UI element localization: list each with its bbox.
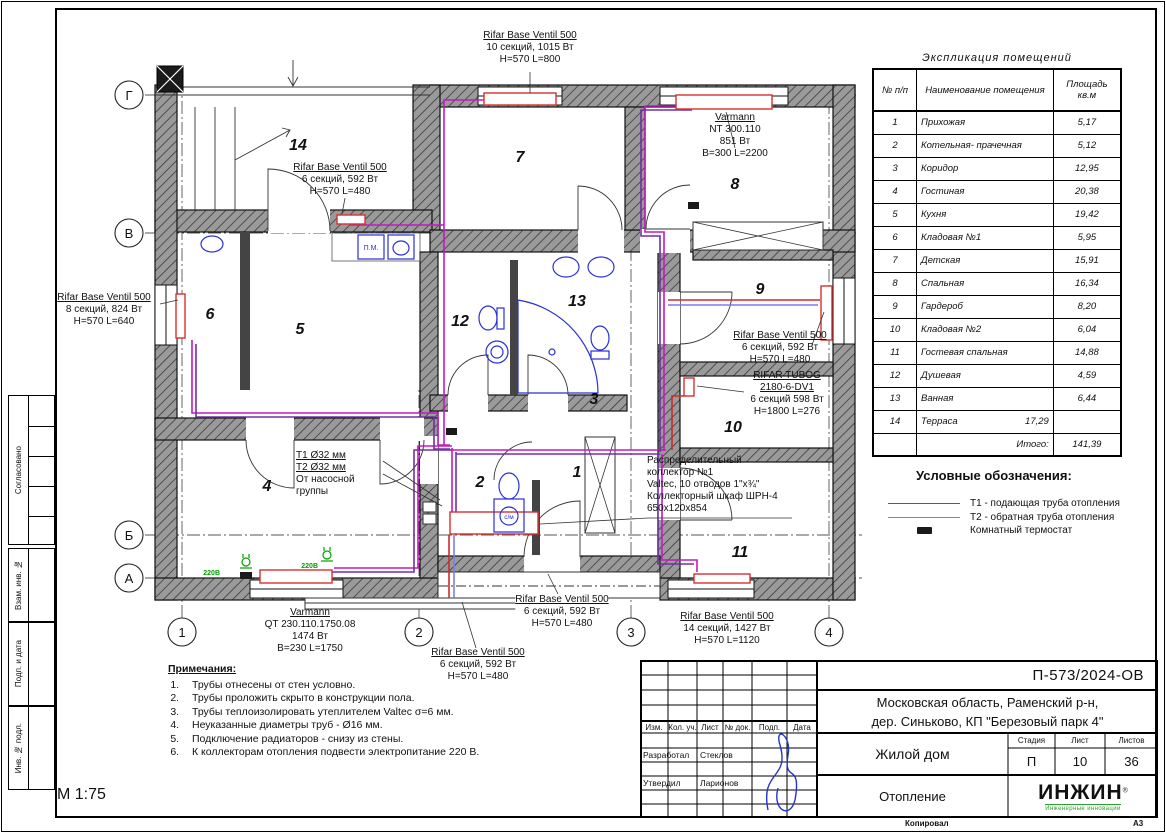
cell-num: 13 <box>873 387 917 410</box>
room-number-6: 6 <box>206 306 215 324</box>
legend-label: Комнатный термостат <box>970 525 1072 536</box>
axis-row-b: Б <box>125 528 134 543</box>
table-total-row: Итого: 141,39 <box>873 433 1121 456</box>
outlet-symbols <box>240 547 333 568</box>
strip-vzam: Взам. инв. № <box>8 548 55 622</box>
note-item: Трубы теплоизолировать утеплителем Valte… <box>182 706 536 720</box>
col-kol: Кол. уч. <box>668 721 697 733</box>
label-radiator-room8: VarmannNT 300.110 851 Вт В=300 L=2200 <box>702 112 768 160</box>
cell-name: Кладовая №1 <box>917 226 1054 249</box>
col-data: Дата <box>787 721 817 733</box>
room-number-4: 4 <box>263 478 272 496</box>
label-radiator-hall: Rifar Base Ventil 5006 секций, 592 Вт Н=… <box>515 594 608 630</box>
room-number-9: 9 <box>756 281 765 299</box>
axis-col-3: 3 <box>627 625 634 640</box>
table-header-row: № п/п Наименование помещения Площадь кв.… <box>873 69 1121 111</box>
table-row: 1Прихожая5,17 <box>873 111 1121 134</box>
sheet-number: 10 <box>1055 748 1105 775</box>
cell-area: 20,38 <box>1053 180 1121 203</box>
partitions <box>240 232 540 556</box>
legend-item-t1: Т1 - подающая труба отопления <box>888 498 1120 509</box>
room-number-10: 10 <box>724 419 742 437</box>
room-number-3: 3 <box>590 391 599 409</box>
cell-area: 14,88 <box>1053 341 1121 364</box>
cell-num: 1 <box>873 111 917 134</box>
stage-label: Стадия <box>1008 733 1055 748</box>
cell-num: 7 <box>873 249 917 272</box>
table-row: 4Гостиная20,38 <box>873 180 1121 203</box>
strip-podp: Подп. и дата <box>8 622 55 706</box>
note-item: Подключение радиаторов - снизу из стены. <box>182 733 536 747</box>
table-row: 5Кухня19,42 <box>873 203 1121 226</box>
cell-name: Ванная <box>917 387 1054 410</box>
label-collector: Распределительный коллектор №1 Valtec, 1… <box>647 455 778 515</box>
col-ndok: № док. <box>723 721 752 733</box>
drawing-sheet: 220В 220В П.М. с/м <box>0 0 1166 833</box>
note-item: Трубы отнесены от стен условно. <box>182 679 536 693</box>
table-row: 9Гардероб8,20 <box>873 295 1121 318</box>
table-row: 3Коридор12,95 <box>873 157 1121 180</box>
strip-label-soglasovano: Согласовано <box>14 446 23 494</box>
cell-name: Кладовая №2 <box>917 318 1054 341</box>
label-radiator-room6: Rifar Base Ventil 5008 секций, 824 Вт Н=… <box>57 292 150 328</box>
room-number-1: 1 <box>573 464 582 482</box>
cell-area: 4,59 <box>1053 364 1121 387</box>
table-row: 7Детская15,91 <box>873 249 1121 272</box>
logo-subtitle: Инженерные инновации <box>1045 804 1121 812</box>
room-number-2: 2 <box>476 474 485 492</box>
legend-item-t2: Т2 - обратная труба отопления <box>888 512 1114 523</box>
sheet-title: Отопление <box>817 775 1008 818</box>
cell-num <box>873 433 917 456</box>
format-label: А3 <box>1133 819 1143 828</box>
logo-text: ИНЖИН <box>1038 781 1123 804</box>
cell-area: 5,17 <box>1053 111 1121 134</box>
label-radiator-tubog: RIFAR TUBOG 2180-6-DV16 секций 598 Вт Н=… <box>750 370 823 418</box>
cell-num: 6 <box>873 226 917 249</box>
label-radiator-room4: VarmannQT 230.110.1750.08 1474 Вт В=230 … <box>265 607 356 655</box>
cell-area: 5,95 <box>1053 226 1121 249</box>
table-row: 11Гостевая спальная14,88 <box>873 341 1121 364</box>
cell-name: Гостевая спальная <box>917 341 1054 364</box>
table-row: 10Кладовая №26,04 <box>873 318 1121 341</box>
room-schedule: Экспликация помещений № п/п Наименование… <box>872 52 1122 457</box>
room-number-8: 8 <box>731 176 740 194</box>
cell-name: Гостиная <box>917 180 1054 203</box>
note-item: К коллекторам отопления подвести электро… <box>182 746 536 760</box>
cell-num: 5 <box>873 203 917 226</box>
col-izm: Изм. <box>640 721 668 733</box>
label-radiator-room7: Rifar Base Ventil 50010 секций, 1015 Вт … <box>483 30 576 66</box>
cell-name: Кухня <box>917 203 1054 226</box>
cell-num: 14 <box>873 410 917 433</box>
drawing-scale: М 1:75 <box>57 786 106 804</box>
axis-col-1: 1 <box>178 625 185 640</box>
cell-area: 16,34 <box>1053 272 1121 295</box>
cell-num: 11 <box>873 341 917 364</box>
cell-num: 12 <box>873 364 917 387</box>
axis-row-a: А <box>125 571 134 586</box>
total-value: 141,39 <box>1053 433 1121 456</box>
room-number-5: 5 <box>296 321 305 339</box>
cell-area: 6,04 <box>1053 318 1121 341</box>
legend-item-thermostat: Комнатный термостат <box>888 525 1072 536</box>
copied-label: Копировал <box>905 819 949 828</box>
object-name: Жилой дом <box>817 733 1008 775</box>
project-address: Московская область, Раменский р-н, дер. … <box>817 690 1158 733</box>
outlet-label-2: 220В <box>301 563 318 570</box>
strip-label-vzam: Взам. инв. № <box>14 560 23 610</box>
room-number-13: 13 <box>568 293 586 311</box>
room-name: Терраса <box>921 416 958 427</box>
sheets-label: Листов <box>1105 733 1158 748</box>
room-number-14: 14 <box>289 137 307 155</box>
cell-num: 3 <box>873 157 917 180</box>
room-area-inline: 17,29 <box>1025 416 1049 427</box>
notes-title: Примечания: <box>168 663 536 677</box>
cell-area <box>1053 410 1121 433</box>
outlet-label-1: 220В <box>203 570 220 577</box>
room-schedule-title: Экспликация помещений <box>872 52 1122 64</box>
table-row: 12Душевая4,59 <box>873 364 1121 387</box>
cell-name: Прихожая <box>917 111 1054 134</box>
logo-registered-mark: ® <box>1123 787 1128 794</box>
strip-approved: Согласовано <box>8 395 55 545</box>
cell-area: 12,95 <box>1053 157 1121 180</box>
axis-row-g: Г <box>125 88 132 103</box>
label-radiator-room9: Rifar Base Ventil 5006 секций, 592 Вт Н=… <box>733 330 826 366</box>
approved-role: Утвердил <box>640 776 697 790</box>
cell-num: 4 <box>873 180 917 203</box>
cell-area: 8,20 <box>1053 295 1121 318</box>
col-podp: Подп. <box>752 721 787 733</box>
table-row: 2Котельная- прачечная5,12 <box>873 134 1121 157</box>
title-block: П-573/2024-ОВ Московская область, Раменс… <box>640 660 1158 818</box>
table-row: 8Спальная16,34 <box>873 272 1121 295</box>
col-header-name: Наименование помещения <box>917 69 1054 111</box>
cell-area: 19,42 <box>1053 203 1121 226</box>
strip-label-podp: Подп. и дата <box>14 640 23 687</box>
axis-col-4: 4 <box>825 625 832 640</box>
col-header-num: № п/п <box>873 69 917 111</box>
total-label: Итого: <box>917 433 1054 456</box>
cell-name: Коридор <box>917 157 1054 180</box>
chimney <box>157 66 183 92</box>
cell-area: 15,91 <box>1053 249 1121 272</box>
cell-name: Терраса17,29 <box>917 410 1054 433</box>
signature-scribble <box>767 734 797 811</box>
company-logo: ИНЖИН® Инженерные инновации <box>1008 775 1158 818</box>
developed-name: Стеклов <box>697 748 752 762</box>
axis-row-v: В <box>125 226 134 241</box>
cell-name: Детская <box>917 249 1054 272</box>
document-code: П-573/2024-ОВ <box>817 660 1158 690</box>
cell-name: Котельная- прачечная <box>917 134 1054 157</box>
label-supply-pipes: Т1 Ø32 мм Т2 Ø32 мм От насосной группы <box>296 450 355 498</box>
cell-area: 5,12 <box>1053 134 1121 157</box>
t2-line-sample <box>888 517 960 518</box>
stage-value: П <box>1008 748 1055 775</box>
approved-name: Ларионов <box>697 776 752 790</box>
washer-label: с/м <box>504 514 514 521</box>
strip-inv: Инв. № подл. <box>8 706 55 790</box>
room-number-7: 7 <box>516 149 525 167</box>
axis-col-2: 2 <box>415 625 422 640</box>
legend-label: Т2 - обратная труба отопления <box>970 512 1114 523</box>
cell-name: Спальная <box>917 272 1054 295</box>
cell-area: 6,44 <box>1053 387 1121 410</box>
thermostat-sample <box>917 527 932 534</box>
col-header-area: Площадь кв.м <box>1053 69 1121 111</box>
room-number-11: 11 <box>732 544 749 562</box>
sheets-total: 36 <box>1105 748 1158 775</box>
room-number-12: 12 <box>451 313 469 331</box>
dishwasher-label: П.М. <box>364 245 379 252</box>
col-list: Лист <box>697 721 723 733</box>
table-row: 13Ванная6,44 <box>873 387 1121 410</box>
cell-num: 8 <box>873 272 917 295</box>
developed-role: Разработал <box>640 748 697 762</box>
cell-num: 10 <box>873 318 917 341</box>
notes-block: Примечания: Трубы отнесены от стен услов… <box>168 663 536 760</box>
legend-title: Условные обозначения: <box>916 468 1072 483</box>
table-row: 6Кладовая №15,95 <box>873 226 1121 249</box>
legend-label: Т1 - подающая труба отопления <box>970 498 1120 509</box>
table-row: 14 Терраса17,29 <box>873 410 1121 433</box>
note-item: Трубы проложить скрыто в конструкции пол… <box>182 692 536 706</box>
label-radiator-terrace: Rifar Base Ventil 5006 секций, 592 Вт Н=… <box>293 162 386 198</box>
strip-label-inv: Инв. № подл. <box>14 723 23 773</box>
cell-num: 9 <box>873 295 917 318</box>
cell-name: Гардероб <box>917 295 1054 318</box>
cell-name: Душевая <box>917 364 1054 387</box>
cell-num: 2 <box>873 134 917 157</box>
label-radiator-room11: Rifar Base Ventil 50014 секций, 1427 Вт … <box>680 611 773 647</box>
t1-line-sample <box>888 503 960 504</box>
sheet-label: Лист <box>1055 733 1105 748</box>
note-item: Неуказанные диаметры труб - Ø16 мм. <box>182 719 536 733</box>
